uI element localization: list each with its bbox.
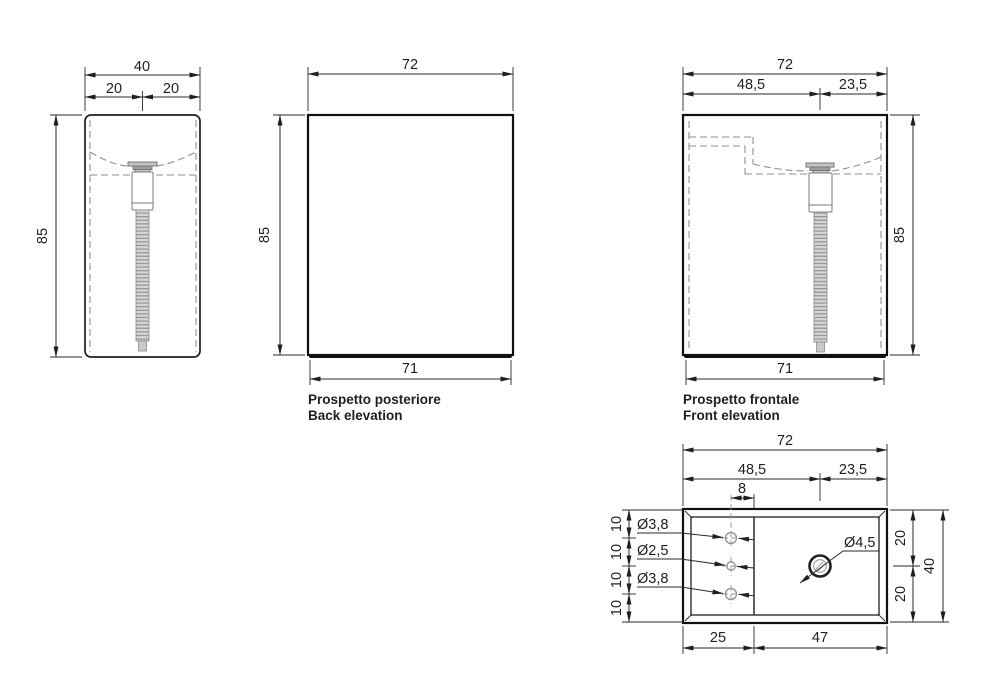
dim-plan-right-bottom: 20 xyxy=(893,586,909,602)
front-view-title-english: Front elevation xyxy=(683,408,780,423)
plan-view: Ø3,8 Ø2,5 Ø3,8 Ø4,5 72 48 xyxy=(609,433,949,654)
front-elevation-view: 72 48,5 23,5 85 71 Prospetto frontale Fr… xyxy=(683,57,920,423)
drain-pipe-end xyxy=(817,342,825,352)
side-elevation-view: 40 20 20 85 xyxy=(35,59,200,357)
dim-plan-left: 48,5 xyxy=(738,462,766,478)
dim-back-base: 71 xyxy=(402,361,418,377)
plan-hole-labels: Ø3,8 Ø2,5 Ø3,8 Ø4,5 xyxy=(637,517,879,596)
side-dimensions: 40 20 20 85 xyxy=(35,59,200,357)
dim-side-left-half: 20 xyxy=(106,81,122,97)
dim-plan-right-top: 20 xyxy=(893,530,909,546)
hole-middle-diameter-label: Ø2,5 xyxy=(637,543,668,559)
drawing-svg: 40 20 20 85 72 85 71 Prospe xyxy=(0,0,987,691)
dim-plan-spacing-1: 10 xyxy=(609,516,625,532)
side-drain-assembly xyxy=(128,162,157,351)
front-basin-curve-right xyxy=(832,157,881,171)
drain-flange-ring xyxy=(810,167,830,171)
drain-flange-ring xyxy=(133,166,152,170)
plan-chamfer-br xyxy=(878,614,885,621)
hole-top-diameter-label: Ø3,8 xyxy=(637,517,668,533)
back-view-title-italian: Prospetto posteriore xyxy=(308,392,441,407)
dim-side-right-half: 20 xyxy=(163,81,179,97)
plan-outer-rim xyxy=(683,509,887,623)
drain-flange xyxy=(806,163,834,167)
dim-front-right: 23,5 xyxy=(839,77,867,93)
plan-chamfer-tl xyxy=(685,511,692,518)
dim-front-height: 85 xyxy=(892,227,908,243)
front-drain-assembly xyxy=(806,163,834,352)
dim-plan-spacing-2: 10 xyxy=(609,544,625,560)
dim-front-left: 48,5 xyxy=(737,77,765,93)
drain-hole-inner xyxy=(814,560,827,573)
dim-side-height: 85 xyxy=(35,228,51,244)
back-elevation-view: 72 85 71 Prospetto posteriore Back eleva… xyxy=(257,57,513,423)
side-basin-curve-left xyxy=(90,152,128,166)
drain-trap-body xyxy=(809,173,832,212)
front-view-title-italian: Prospetto frontale xyxy=(683,392,800,407)
dim-back-height: 85 xyxy=(257,227,273,243)
dim-plan-bottom-right: 47 xyxy=(812,630,828,646)
dim-plan-width: 72 xyxy=(777,433,793,449)
dim-front-base: 71 xyxy=(777,361,793,377)
drain-flex-pipe xyxy=(136,210,149,341)
technical-drawing-canvas: 40 20 20 85 72 85 71 Prospe xyxy=(0,0,987,691)
front-basin-curve-left xyxy=(753,164,808,171)
dim-plan-depth: 40 xyxy=(922,558,938,574)
drain-pipe-end xyxy=(139,341,147,351)
dim-front-width: 72 xyxy=(777,57,793,73)
plan-chamfer-tr xyxy=(878,511,885,518)
front-dimensions: 72 48,5 23,5 85 71 xyxy=(683,57,920,385)
plan-faucet-holes xyxy=(722,495,740,604)
back-view-title-english: Back elevation xyxy=(308,408,403,423)
drain-flex-pipe xyxy=(814,212,827,342)
drain-flange xyxy=(128,162,157,166)
dim-plan-right: 23,5 xyxy=(839,462,867,478)
back-dimensions: 72 85 71 xyxy=(257,57,513,385)
dim-plan-spacing-3: 10 xyxy=(609,572,625,588)
back-body-outline xyxy=(308,115,513,355)
dim-back-width: 72 xyxy=(402,57,418,73)
drain-trap-body xyxy=(132,172,153,210)
plan-chamfer-bl xyxy=(685,614,692,621)
drain-hole-diameter-label: Ø4,5 xyxy=(844,535,875,551)
front-body-outline xyxy=(683,115,887,355)
dim-plan-spacing-4: 10 xyxy=(609,600,625,616)
dim-side-total-width: 40 xyxy=(134,59,150,75)
plan-inner-rim xyxy=(691,517,879,615)
dim-plan-hole-offset: 8 xyxy=(738,481,746,497)
hole-bottom-diameter-label: Ø3,8 xyxy=(637,571,668,587)
side-basin-curve-right xyxy=(157,152,196,166)
dim-plan-bottom-left: 25 xyxy=(710,630,726,646)
